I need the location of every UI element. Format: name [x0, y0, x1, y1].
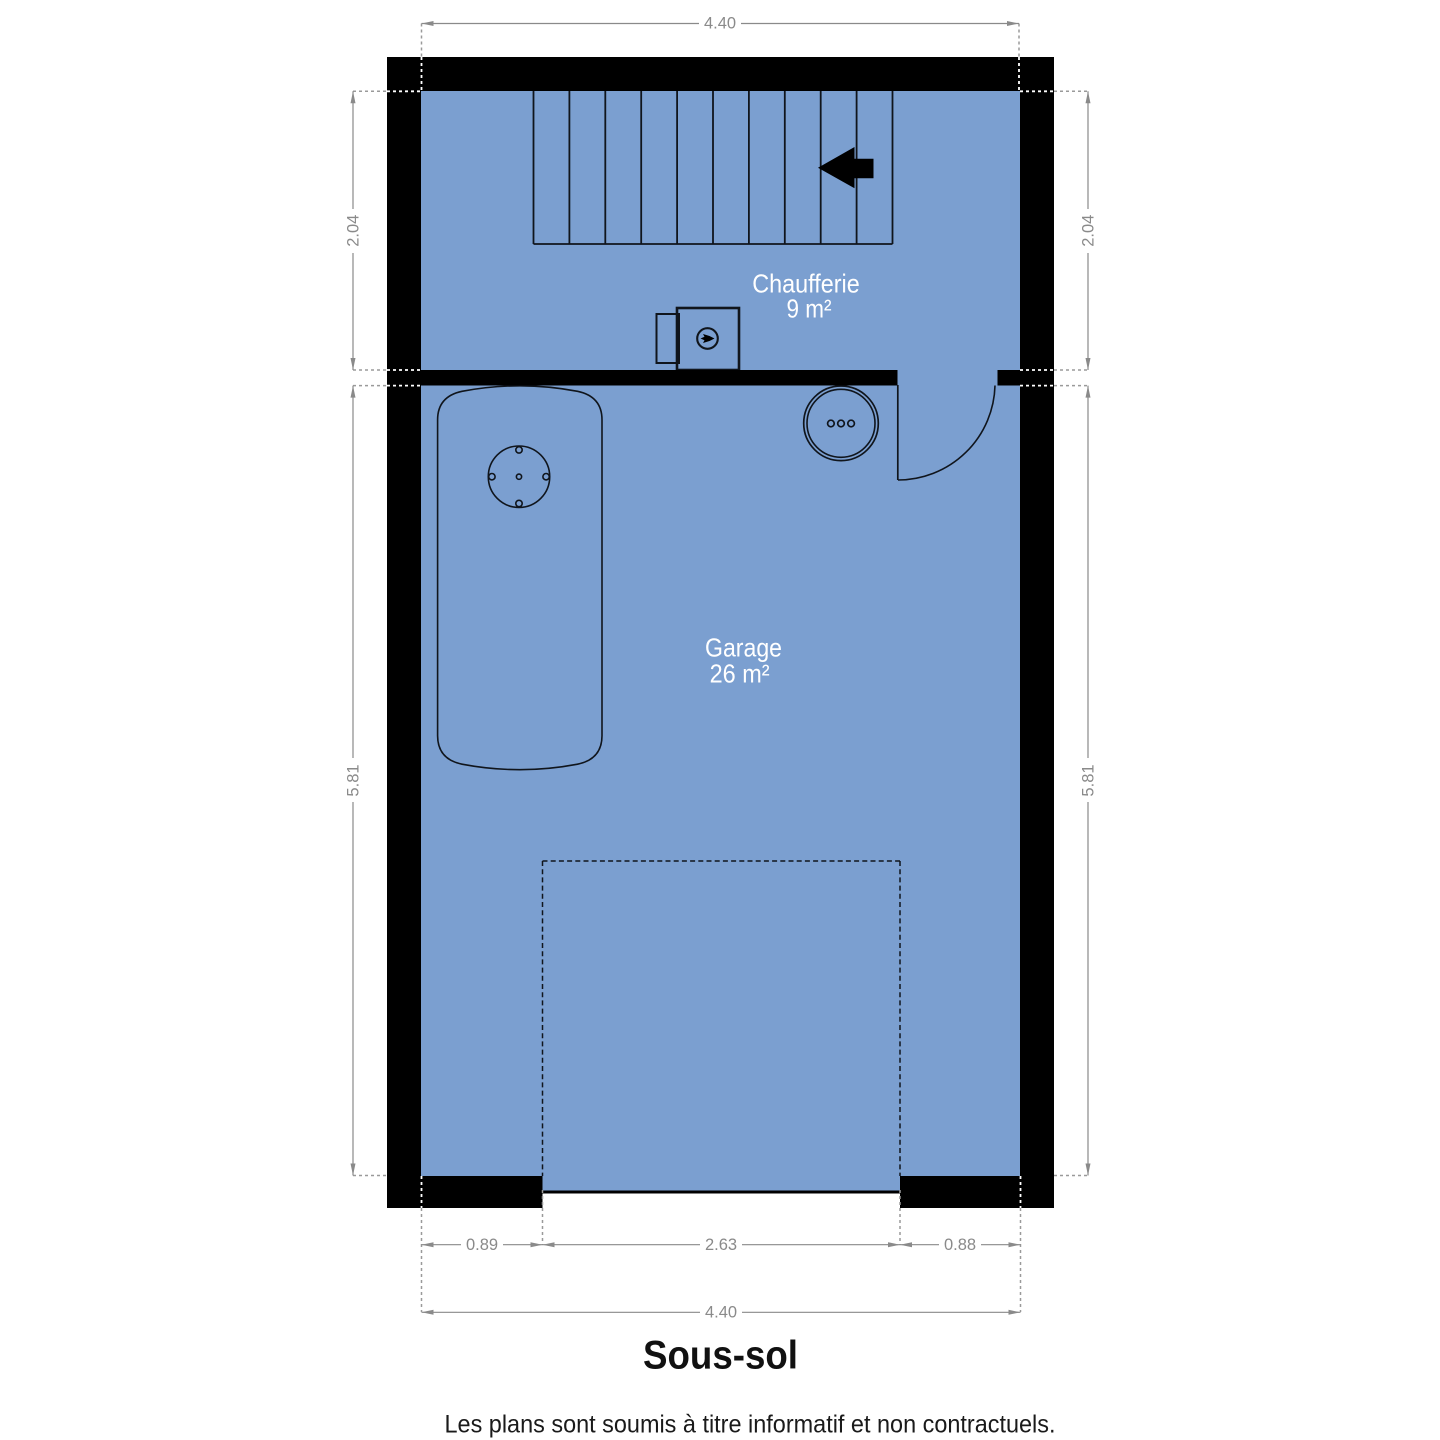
svg-text:4.40: 4.40 [705, 1303, 737, 1321]
svg-text:2.04: 2.04 [1080, 215, 1098, 247]
svg-text:Sous-sol: Sous-sol [643, 1334, 798, 1378]
svg-text:2.63: 2.63 [705, 1236, 737, 1254]
svg-text:4.40: 4.40 [704, 15, 736, 33]
svg-text:26 m²: 26 m² [710, 659, 770, 689]
svg-text:0.88: 0.88 [944, 1236, 976, 1254]
svg-text:5.81: 5.81 [345, 764, 363, 796]
svg-text:0.89: 0.89 [466, 1236, 498, 1254]
svg-text:9 m²: 9 m² [787, 294, 832, 324]
svg-text:Les plans sont soumis à titre: Les plans sont soumis à titre informatif… [445, 1411, 1056, 1439]
svg-text:2.04: 2.04 [345, 215, 363, 247]
svg-text:5.81: 5.81 [1080, 764, 1098, 796]
